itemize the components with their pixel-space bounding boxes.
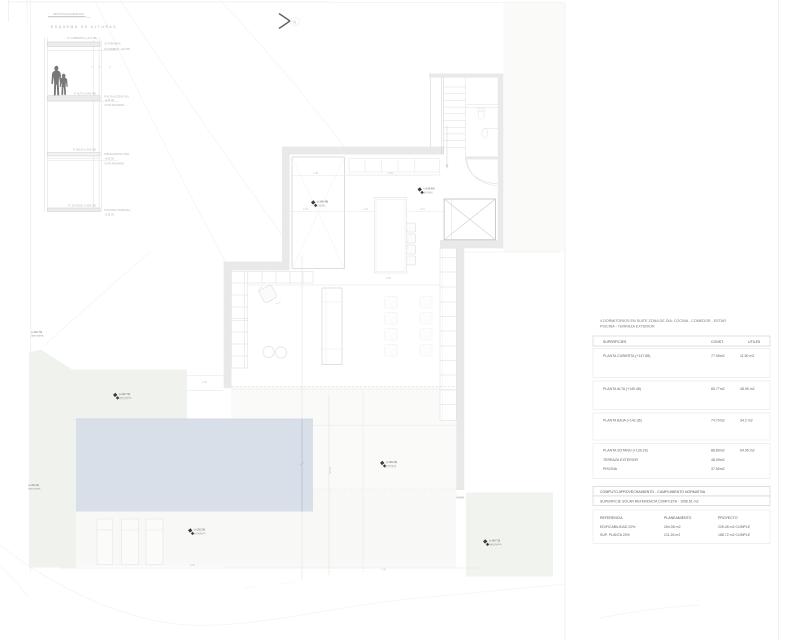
svg-text:(+145.48): (+145.48)	[424, 187, 435, 191]
svg-text:(+139.29): (+139.29)	[28, 483, 39, 487]
svg-text:SUP. PLANTA 20%: SUP. PLANTA 20%	[600, 533, 630, 537]
svg-text:P. ALTA (+145.48): P. ALTA (+145.48)	[74, 92, 96, 96]
svg-text:34.2 m2: 34.2 m2	[740, 419, 753, 423]
svg-text:2.10: 2.10	[420, 208, 425, 211]
svg-text:P.ALTA ACCESO VIV.: P.ALTA ACCESO VIV.	[104, 94, 129, 98]
svg-text:CONST.: CONST.	[711, 340, 724, 344]
svg-text:1.98: 1.98	[313, 172, 318, 175]
svg-text:37.50m2: 37.50m2	[711, 467, 725, 471]
svg-text:SECCION ESQUEMATICA: SECCION ESQUEMATICA	[53, 12, 84, 16]
svg-text:2.20: 2.20	[388, 172, 393, 175]
svg-text:UTILES: UTILES	[748, 340, 761, 344]
svg-text:74.70m2: 74.70m2	[711, 419, 725, 423]
svg-text:64.95 m2: 64.95 m2	[740, 449, 755, 453]
svg-text:PLANEAMIENTO: PLANEAMIENTO	[664, 516, 692, 520]
svg-text:REFERENCIA: REFERENCIA	[600, 516, 623, 520]
svg-text:TERRAZA: TERRAZA	[386, 464, 397, 467]
svg-text:P. BAJA (+142.36): P. BAJA (+142.36)	[73, 148, 96, 152]
svg-text:PISCINA: PISCINA	[603, 467, 618, 471]
svg-text:PLANTA ALTA (+145.48): PLANTA ALTA (+145.48)	[603, 387, 641, 391]
svg-text:225.45 m2 CUMPLE: 225.45 m2 CUMPLE	[718, 525, 751, 529]
svg-text:ALTURA MAX: ALTURA MAX	[104, 42, 121, 46]
svg-text:COTA RASANTE: COTA RASANTE	[104, 162, 124, 166]
svg-text:1.30: 1.30	[363, 208, 368, 211]
svg-text:4 DORMITORIOS EN SUITE ZONA DE: 4 DORMITORIOS EN SUITE ZONA DE DIA: COCI…	[600, 319, 726, 323]
svg-text:PLANTA CUBIERTA (+147.88): PLANTA CUBIERTA (+147.88)	[603, 354, 650, 358]
svg-text:PISCINA - TERRAZA EXTERIOR: PISCINA - TERRAZA EXTERIOR	[600, 325, 655, 329]
svg-text:SUPERFICIES: SUPERFICIES	[603, 340, 627, 344]
svg-text:(+140.70): (+140.70)	[119, 392, 130, 396]
svg-text:2.85: 2.85	[386, 277, 391, 280]
svg-text:PLANTA SOTANO (+139.29): PLANTA SOTANO (+139.29)	[603, 449, 648, 453]
svg-text:JARDINERA: JARDINERA	[31, 335, 44, 338]
svg-text:(+139.29): (+139.29)	[194, 528, 205, 532]
svg-text:P. ALTA: P. ALTA	[317, 204, 325, 207]
svg-text:COMPUTO APROVECHAMIENTO - CUMP: COMPUTO APROVECHAMIENTO - CUMPLIMIENTO N…	[600, 490, 706, 494]
svg-text:48.09m2: 48.09m2	[711, 458, 725, 462]
svg-text:SUPERFICIE SOLAR REFERENCIA CO: SUPERFICIE SOLAR REFERENCIA COMPLETA - 1…	[600, 500, 699, 504]
svg-text:(+140.70): (+140.70)	[489, 539, 500, 543]
svg-text:(+140.70): (+140.70)	[31, 330, 42, 334]
svg-text:JARDINERA: JARDINERA	[119, 396, 132, 399]
svg-text:P.SOTANO TERRAZA: P.SOTANO TERRAZA	[104, 208, 130, 212]
svg-text:PROYECTO: PROYECTO	[718, 516, 738, 520]
svg-text:JARDINERA: JARDINERA	[489, 543, 502, 546]
svg-text:77.09m2: 77.09m2	[711, 354, 725, 358]
svg-text:(+139.29): (+139.29)	[386, 460, 397, 464]
svg-text:+145.48: +145.48	[104, 98, 114, 102]
svg-text:PLANTA BAJA (+142.36): PLANTA BAJA (+142.36)	[603, 419, 642, 423]
svg-text:7.45: 7.45	[381, 569, 386, 572]
svg-text:211.26 m2: 211.26 m2	[664, 533, 680, 537]
svg-text:65.77m2: 65.77m2	[711, 387, 725, 391]
svg-text:EDIFICABILIDAD 20%: EDIFICABILIDAD 20%	[600, 525, 635, 529]
svg-text:+139.29: +139.29	[104, 213, 114, 217]
svg-text:48.95 m2: 48.95 m2	[740, 387, 755, 391]
svg-text:COTA RASANTE: COTA RASANTE	[104, 103, 124, 107]
svg-text:(+145.48): (+145.48)	[317, 200, 328, 204]
svg-text:88.89m2: 88.89m2	[711, 449, 725, 453]
svg-text:ESQUEMA DE ALTURAS: ESQUEMA DE ALTURAS	[51, 25, 117, 29]
svg-text:1.20: 1.20	[202, 381, 207, 384]
svg-text:23.80: 23.80	[329, 466, 332, 473]
svg-text:+142.36: +142.36	[104, 157, 114, 161]
svg-text:11.50 m2: 11.50 m2	[740, 354, 754, 358]
svg-text:264.08 m2: 264.08 m2	[664, 525, 681, 529]
svg-text:188.72 m2 CUMPLE: 188.72 m2 CUMPLE	[718, 533, 751, 537]
svg-text:P. CUBIERTA (+147.88): P. CUBIERTA (+147.88)	[67, 36, 97, 40]
svg-text:N: N	[293, 20, 296, 25]
svg-text:P. SOTANO (+139.29): P. SOTANO (+139.29)	[69, 204, 97, 208]
svg-text:9.30: 9.30	[190, 564, 195, 567]
svg-text:SOLARIUM: SOLARIUM	[194, 532, 206, 535]
svg-text:TERRAZA EXTERIOR: TERRAZA EXTERIOR	[603, 458, 638, 462]
svg-text:P.BAJA ESTAR COM.: P.BAJA ESTAR COM.	[104, 152, 129, 156]
svg-text:ACCESO: ACCESO	[424, 191, 434, 194]
svg-text:JARDINERA: JARDINERA	[28, 488, 41, 491]
svg-text:P.CUBIERTA +147.88: P.CUBIERTA +147.88	[104, 47, 130, 51]
svg-text:2.45: 2.45	[303, 208, 308, 211]
